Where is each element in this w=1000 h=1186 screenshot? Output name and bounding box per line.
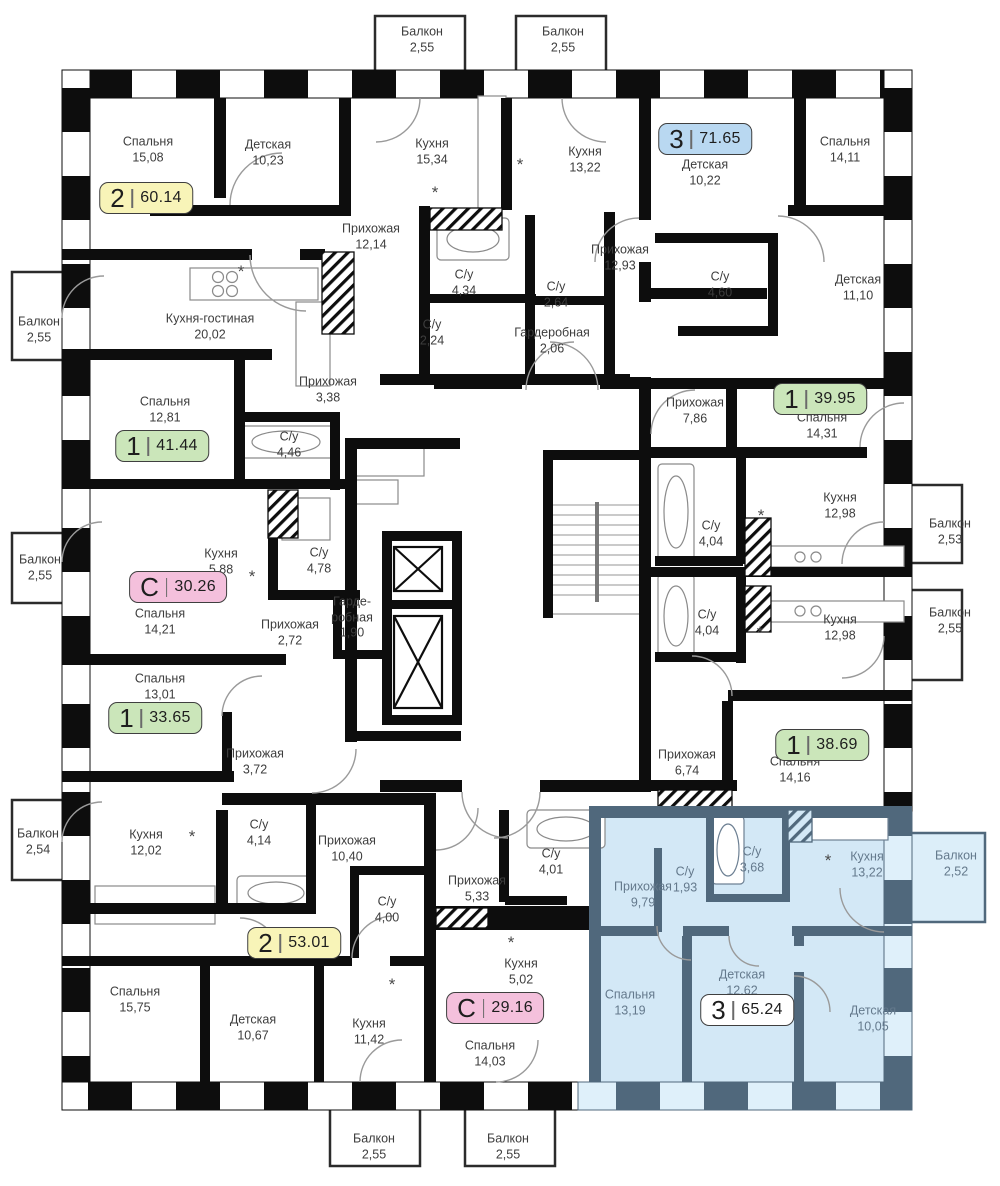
selected-apartment-region[interactable] <box>589 806 985 1110</box>
apartment-badge[interactable]: С30.26 <box>129 571 227 603</box>
apartment-badge[interactable]: 260.14 <box>99 182 193 214</box>
apartment-area: 29.16 <box>491 999 533 1017</box>
apartment-type: 1 <box>119 705 133 731</box>
apartment-badge[interactable]: 371.65 <box>658 123 752 155</box>
apartment-type: С <box>457 995 476 1021</box>
apartment-type: 1 <box>784 386 798 412</box>
apartment-type: 3 <box>669 126 683 152</box>
badge-divider <box>483 999 485 1018</box>
badge-divider <box>141 709 143 728</box>
floor-plan: Балкон2,55Балкон2,55Спальня15,08Детская1… <box>0 0 1000 1186</box>
badge-divider <box>148 437 150 456</box>
apartment-area: 38.69 <box>816 736 858 754</box>
apartment-area: 33.65 <box>149 709 191 727</box>
apartment-type: 3 <box>711 997 725 1023</box>
badge-divider <box>132 189 134 208</box>
apartment-badge[interactable]: С29.16 <box>446 992 544 1024</box>
stair-rail <box>595 502 599 602</box>
apartment-type: 1 <box>126 433 140 459</box>
apartment-badge[interactable]: 141.44 <box>115 430 209 462</box>
badge-divider <box>691 130 693 149</box>
badge-divider <box>280 934 282 953</box>
apartment-area: 65.24 <box>741 1001 783 1019</box>
apartment-area: 71.65 <box>699 130 741 148</box>
apartment-area: 30.26 <box>174 578 216 596</box>
apartment-badge[interactable]: 133.65 <box>108 702 202 734</box>
stairs <box>548 456 646 614</box>
apartment-area: 53.01 <box>288 934 330 952</box>
badge-divider <box>166 578 168 597</box>
elevators <box>394 547 442 708</box>
apartment-area: 39.95 <box>814 390 856 408</box>
badge-divider <box>806 390 808 409</box>
apartment-type: 1 <box>786 732 800 758</box>
apartment-type: 2 <box>110 185 124 211</box>
apartment-type: 2 <box>258 930 272 956</box>
apartment-area: 41.44 <box>156 437 198 455</box>
badge-divider <box>808 736 810 755</box>
apartment-type: С <box>140 574 159 600</box>
apartment-area: 60.14 <box>140 189 182 207</box>
apartment-badge[interactable]: 253.01 <box>247 927 341 959</box>
apartment-badge[interactable]: 139.95 <box>773 383 867 415</box>
apartment-badge[interactable]: 365.24 <box>700 994 794 1026</box>
apartment-badge[interactable]: 138.69 <box>775 729 869 761</box>
badge-divider <box>733 1001 735 1020</box>
